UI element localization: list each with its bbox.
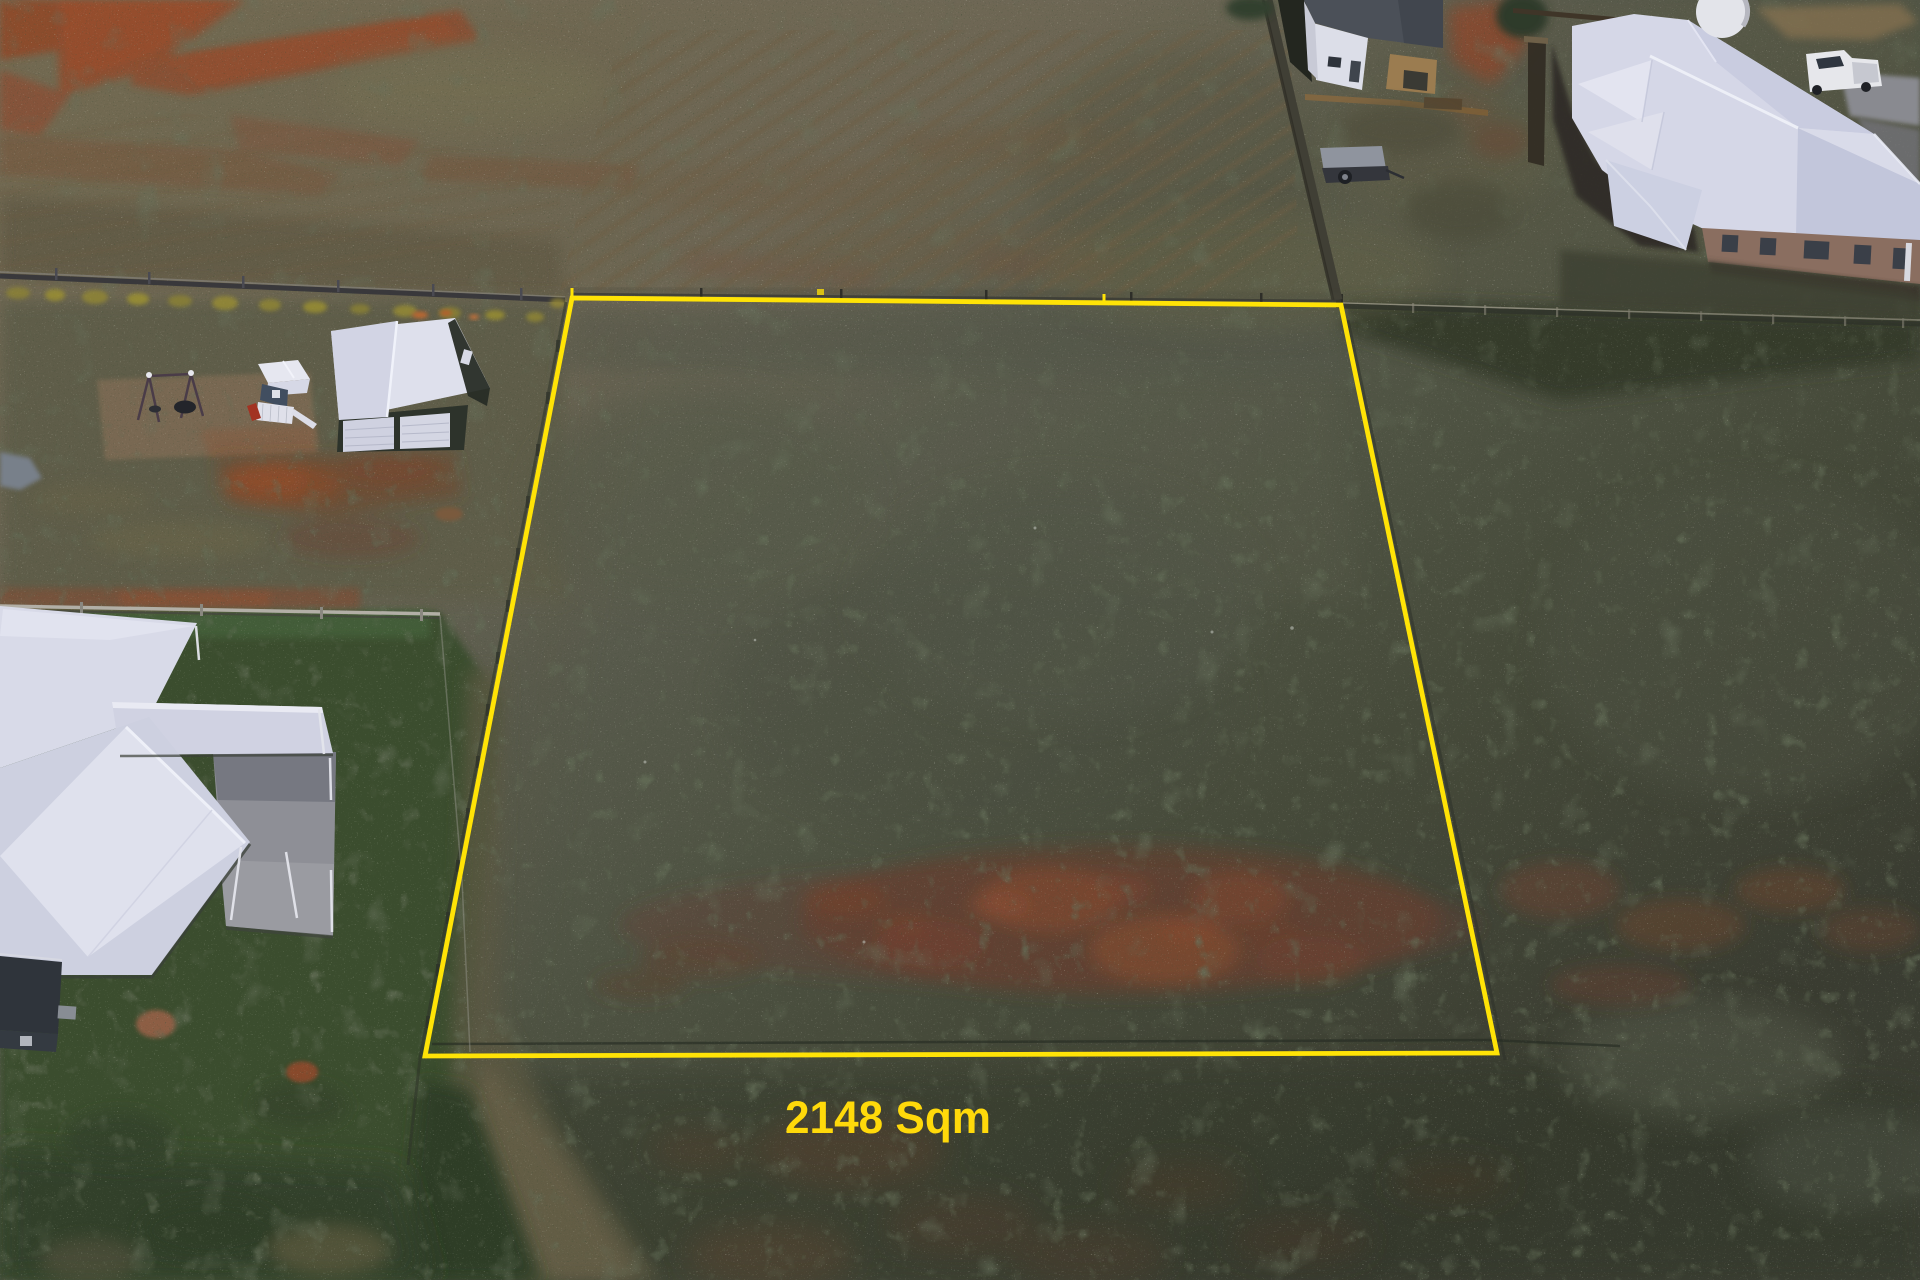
svg-text:2148 Sqm: 2148 Sqm — [785, 1092, 991, 1143]
